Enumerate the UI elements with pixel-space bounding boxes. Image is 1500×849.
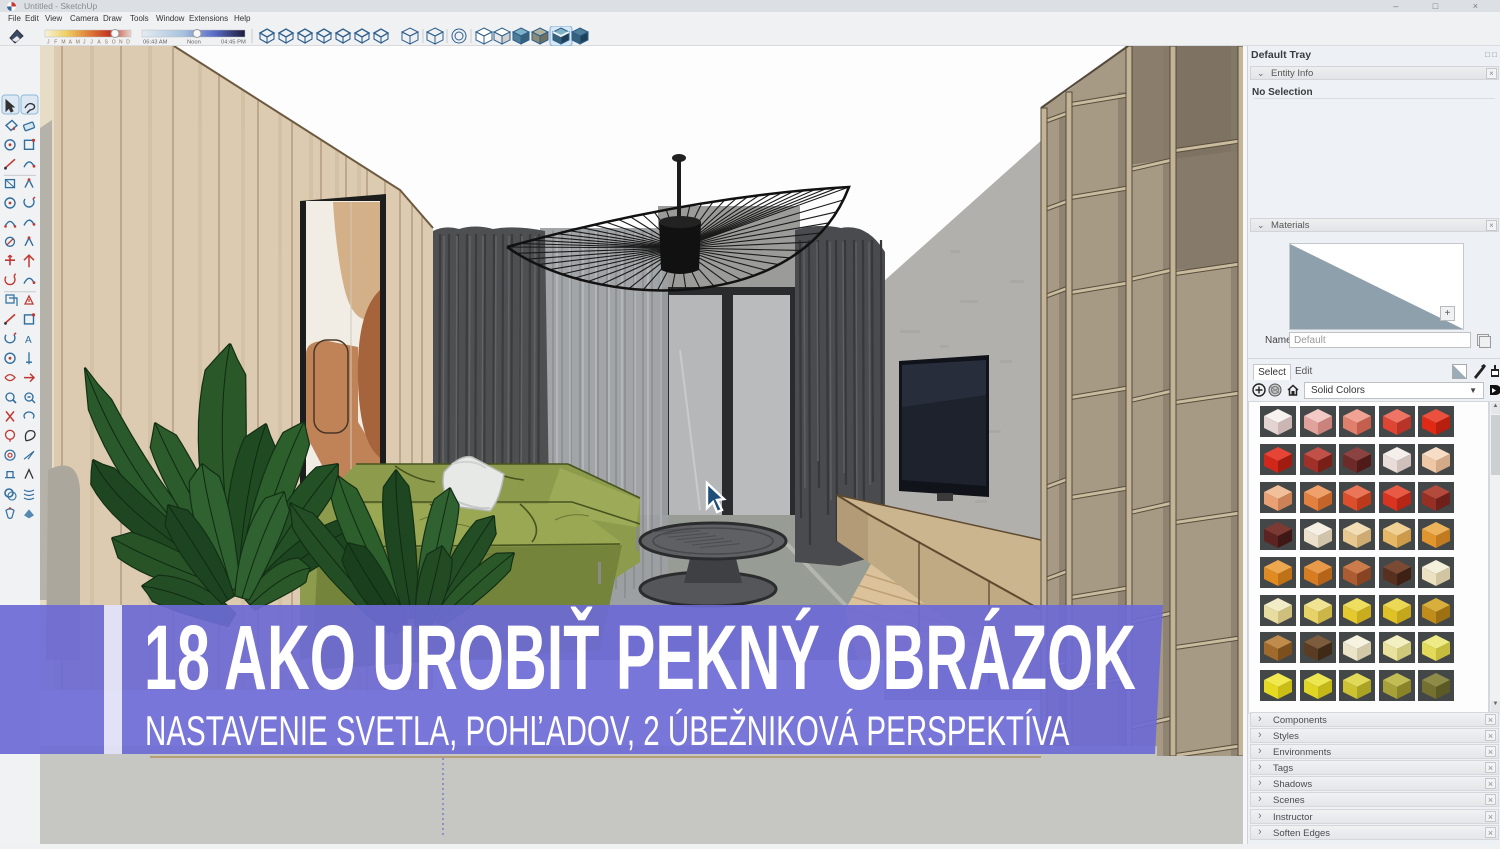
svg-text:N: N — [119, 40, 123, 46]
svg-text:S: S — [105, 40, 109, 46]
svg-text:A: A — [25, 335, 32, 346]
svg-text:J: J — [83, 40, 86, 46]
svg-text:M: M — [76, 40, 80, 46]
svg-text:Noon: Noon — [187, 40, 201, 46]
svg-text:F: F — [54, 40, 57, 46]
svg-text:04:45 PM: 04:45 PM — [221, 40, 246, 46]
svg-text:J: J — [47, 40, 50, 46]
svg-text:A: A — [69, 40, 73, 46]
svg-text:O: O — [112, 40, 116, 46]
svg-text:J: J — [90, 40, 93, 46]
svg-text:06:43 AM: 06:43 AM — [143, 40, 168, 46]
svg-text:A: A — [97, 40, 101, 46]
svg-text:M: M — [61, 40, 65, 46]
svg-text:D: D — [126, 40, 130, 46]
